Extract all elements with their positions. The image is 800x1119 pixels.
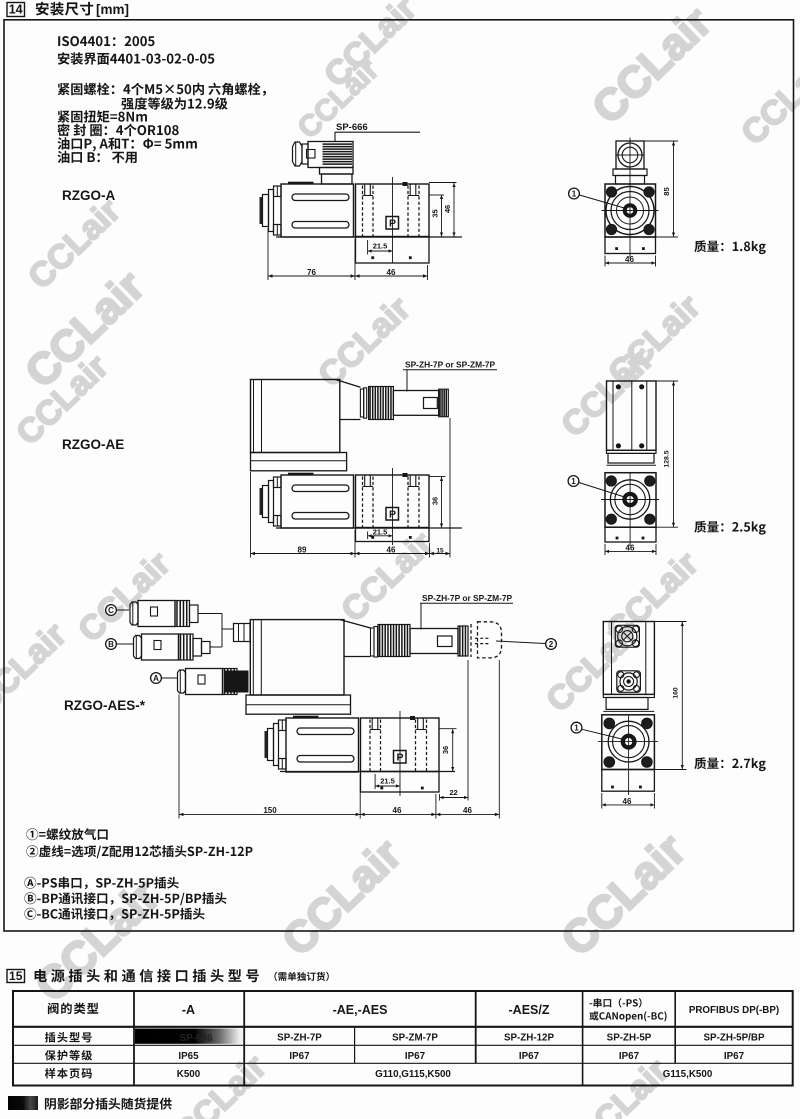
svg-text:46: 46 <box>443 205 452 213</box>
svg-text:SP-666: SP-666 <box>180 1033 213 1044</box>
svg-text:CCLair: CCLair <box>554 340 661 445</box>
svg-text:C: C <box>108 606 114 615</box>
svg-text:-AES/Z: -AES/Z <box>509 1003 550 1017</box>
svg-text:SP-666: SP-666 <box>336 122 368 133</box>
svg-text:CCLair: CCLair <box>273 830 411 965</box>
svg-text:IP67: IP67 <box>619 1051 640 1062</box>
svg-text:46: 46 <box>625 255 634 264</box>
svg-text:35: 35 <box>430 209 439 217</box>
svg-text:1: 1 <box>571 477 576 486</box>
svg-text:128.5: 128.5 <box>664 450 671 467</box>
svg-text:14: 14 <box>9 3 23 17</box>
svg-text:-AE,-AES: -AE,-AES <box>333 1003 388 1017</box>
svg-text:IP67: IP67 <box>289 1051 310 1062</box>
svg-text:IP67: IP67 <box>519 1051 540 1062</box>
svg-text:1: 1 <box>574 723 579 732</box>
svg-text:[mm]: [mm] <box>96 2 129 17</box>
svg-text:36: 36 <box>430 497 439 505</box>
svg-text:RZGO-AE: RZGO-AE <box>62 437 124 452</box>
svg-text:CCLair: CCLair <box>334 525 441 630</box>
svg-text:IP65: IP65 <box>178 1051 199 1062</box>
svg-text:46: 46 <box>626 543 635 552</box>
svg-text:160: 160 <box>672 687 679 699</box>
svg-text:CCLair: CCLair <box>0 616 74 721</box>
svg-text:46: 46 <box>393 806 402 815</box>
svg-text:76: 76 <box>307 268 316 277</box>
svg-text:46: 46 <box>463 806 472 815</box>
svg-text:G115,K500: G115,K500 <box>663 1069 713 1080</box>
svg-text:CCLair: CCLair <box>734 48 800 153</box>
svg-text:IP67: IP67 <box>405 1051 426 1062</box>
svg-text:89: 89 <box>298 546 307 555</box>
svg-text:85: 85 <box>662 187 671 196</box>
svg-text:SP-ZM-7P: SP-ZM-7P <box>392 1033 438 1044</box>
svg-text:2: 2 <box>549 640 554 649</box>
svg-text:G110,G115,K500: G110,G115,K500 <box>375 1069 451 1080</box>
svg-text:SP-ZH-7P: SP-ZH-7P <box>277 1033 322 1044</box>
svg-text:SP-ZH-12P: SP-ZH-12P <box>504 1033 555 1044</box>
svg-text:B: B <box>108 640 114 649</box>
svg-text:15: 15 <box>436 547 444 554</box>
svg-text:A: A <box>153 674 159 683</box>
svg-text:SP-ZH-5P/BP: SP-ZH-5P/BP <box>704 1033 765 1044</box>
svg-text:-A: -A <box>182 1003 195 1017</box>
svg-text:CCLair: CCLair <box>551 823 696 965</box>
svg-text:21.5: 21.5 <box>373 528 388 537</box>
svg-text:CCLair: CCLair <box>539 615 646 720</box>
svg-text:1: 1 <box>572 189 577 198</box>
svg-text:46: 46 <box>387 268 396 277</box>
svg-text:SP-ZH-5P: SP-ZH-5P <box>607 1033 652 1044</box>
svg-text:21.5: 21.5 <box>380 777 395 786</box>
svg-text:22: 22 <box>449 788 457 797</box>
svg-text:K500: K500 <box>177 1069 201 1080</box>
svg-text:46: 46 <box>387 546 396 555</box>
svg-text:RZGO-AES-*: RZGO-AES-* <box>64 698 146 713</box>
svg-text:RZGO-A: RZGO-A <box>62 188 115 203</box>
svg-text:15: 15 <box>9 969 23 983</box>
svg-text:150: 150 <box>263 806 277 815</box>
svg-text:SP-ZH-7P or SP-ZM-7P: SP-ZH-7P or SP-ZM-7P <box>422 593 513 603</box>
svg-text:PROFIBUS DP(-BP): PROFIBUS DP(-BP) <box>689 1005 779 1016</box>
svg-text:36: 36 <box>441 746 450 754</box>
svg-text:IP67: IP67 <box>724 1051 745 1062</box>
svg-text:21.5: 21.5 <box>373 242 388 251</box>
svg-text:46: 46 <box>623 797 632 806</box>
svg-text:CCLair: CCLair <box>311 290 418 395</box>
svg-text:SP-ZH-7P or SP-ZM-7P: SP-ZH-7P or SP-ZM-7P <box>405 360 496 370</box>
